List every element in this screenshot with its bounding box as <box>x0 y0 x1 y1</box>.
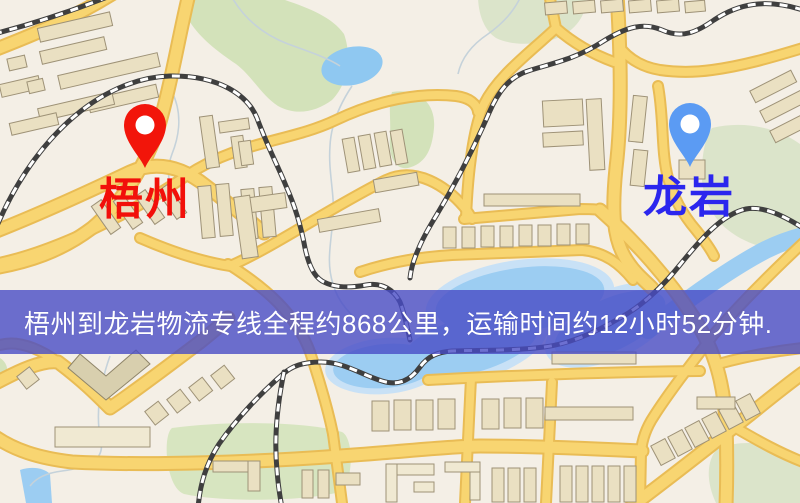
destination-label: 龙岩 <box>643 173 735 222</box>
origin-pin-icon[interactable] <box>124 104 166 168</box>
destination-pin-hole <box>681 115 700 134</box>
route-info-banner: 梧州到龙岩物流专线全程约868公里，运输时间约12小时52分钟. <box>0 290 800 354</box>
origin-label: 梧州 <box>99 175 191 224</box>
route-info-text: 梧州到龙岩物流专线全程约868公里，运输时间约12小时52分钟. <box>24 304 772 341</box>
map-container: 梧州 龙岩 梧州到龙岩物流专线全程约868公里，运输时间约12小时52分钟. <box>0 0 800 503</box>
origin-marker[interactable] <box>124 104 166 168</box>
water-wedge <box>20 468 52 503</box>
map-canvas: 梧州 龙岩 <box>0 0 800 503</box>
origin-pin-hole <box>136 116 155 135</box>
